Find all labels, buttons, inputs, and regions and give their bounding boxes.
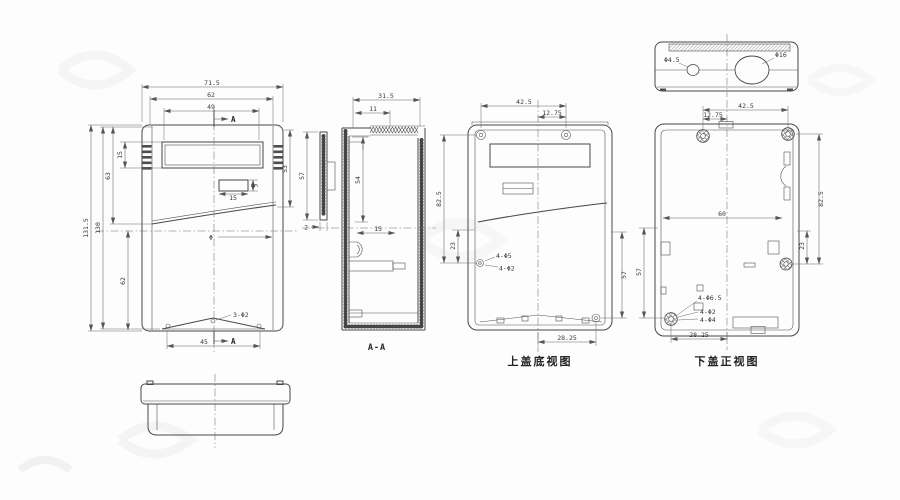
dim-cover-height: 57 <box>298 172 306 180</box>
dim-window-height: 15 <box>116 151 124 159</box>
dim-lower-height: 62 <box>119 277 127 285</box>
bottom-cover-caption: 下盖正视图 <box>695 354 760 368</box>
dim-upper-height: 63 <box>104 172 112 180</box>
dim-lower-height: 23 <box>449 242 457 250</box>
small-window <box>219 180 248 191</box>
section-caption: A-A <box>368 343 386 353</box>
dim-phi-mark: Φ <box>209 234 213 242</box>
dim-height: 82.5 <box>817 191 825 207</box>
label-holes-large: 4-Φ5 <box>496 252 512 260</box>
section-view-aa: 57 2 31.5 11 54 15 A-A <box>298 92 436 353</box>
dim-inner-width: 60 <box>718 210 726 218</box>
dim-bottom-span: 28.25 <box>689 331 709 339</box>
dim-hole-span: 42.5 <box>516 98 532 106</box>
dim-hole-offset: 12.75 <box>542 109 562 117</box>
dim-left-height: 57 <box>635 268 643 276</box>
label-hole-mid: 4-Φ2 <box>700 308 716 316</box>
top-cover-bottom-view: 4-Φ5 4-Φ2 42.5 12.75 82.5 23 57 28.25 上盖… <box>435 98 628 368</box>
dim-hole-offset: 12.75 <box>703 111 723 119</box>
dim-right-height: 57 <box>620 271 628 279</box>
dim-inner-width: 62 <box>207 91 215 99</box>
engineering-drawing: 71.5 62 49 A A 131.5 130 63 15 62 15 5 5… <box>0 0 900 500</box>
dim-bottom-span: 28.25 <box>557 334 577 342</box>
label-bottom-holes: 3-Φ2 <box>233 311 249 319</box>
dim-section-inner-width: 11 <box>369 105 377 113</box>
side-bottom-view <box>141 374 290 448</box>
section-arrow-bottom: A <box>231 337 236 346</box>
dim-inner-height: 130 <box>94 222 102 234</box>
dim-overall-height: 131.5 <box>82 218 90 238</box>
dim-height: 82.5 <box>435 191 443 207</box>
label-large-hole: Φ16 <box>775 51 787 59</box>
label-holes-small: 4-Φ2 <box>499 265 515 273</box>
dim-hole-span: 42.5 <box>738 102 754 110</box>
dim-section-inner-height: 54 <box>354 176 362 184</box>
dim-cover-thickness: 2 <box>304 224 308 232</box>
dim-section-width: 31.5 <box>378 92 394 100</box>
label-hole-small: 4-Φ4 <box>700 316 716 324</box>
label-boss: 4-Φ6.5 <box>698 294 722 302</box>
dim-overall-width: 71.5 <box>204 79 220 87</box>
front-view: 71.5 62 49 A A 131.5 130 63 15 62 15 5 5… <box>82 79 298 352</box>
dim-small-rect-width: 15 <box>229 194 237 202</box>
bottom-cover-front-view: 42.5 12.75 60 82.5 23 57 4-Φ6.5 4-Φ2 4-Φ… <box>635 100 825 368</box>
top-cover-caption: 上盖底视图 <box>508 354 573 368</box>
dim-right-height: 53 <box>281 165 289 173</box>
enclosure-top-view: Φ4.5 Φ16 <box>655 34 798 97</box>
dim-section-depth: 15 <box>374 225 382 233</box>
label-small-hole: Φ4.5 <box>664 56 680 64</box>
display-window <box>162 142 263 168</box>
vent-slots-left <box>143 145 152 170</box>
section-arrow-top: A <box>231 115 236 124</box>
large-hole <box>735 56 769 84</box>
small-hole <box>687 65 699 76</box>
dim-window-width: 49 <box>207 103 215 111</box>
dim-lower-height: 23 <box>798 242 806 250</box>
dim-small-rect-height: 5 <box>252 183 260 187</box>
dim-bottom-width: 45 <box>200 338 208 346</box>
drawing-page: 71.5 62 49 A A 131.5 130 63 15 62 15 5 5… <box>0 0 900 500</box>
